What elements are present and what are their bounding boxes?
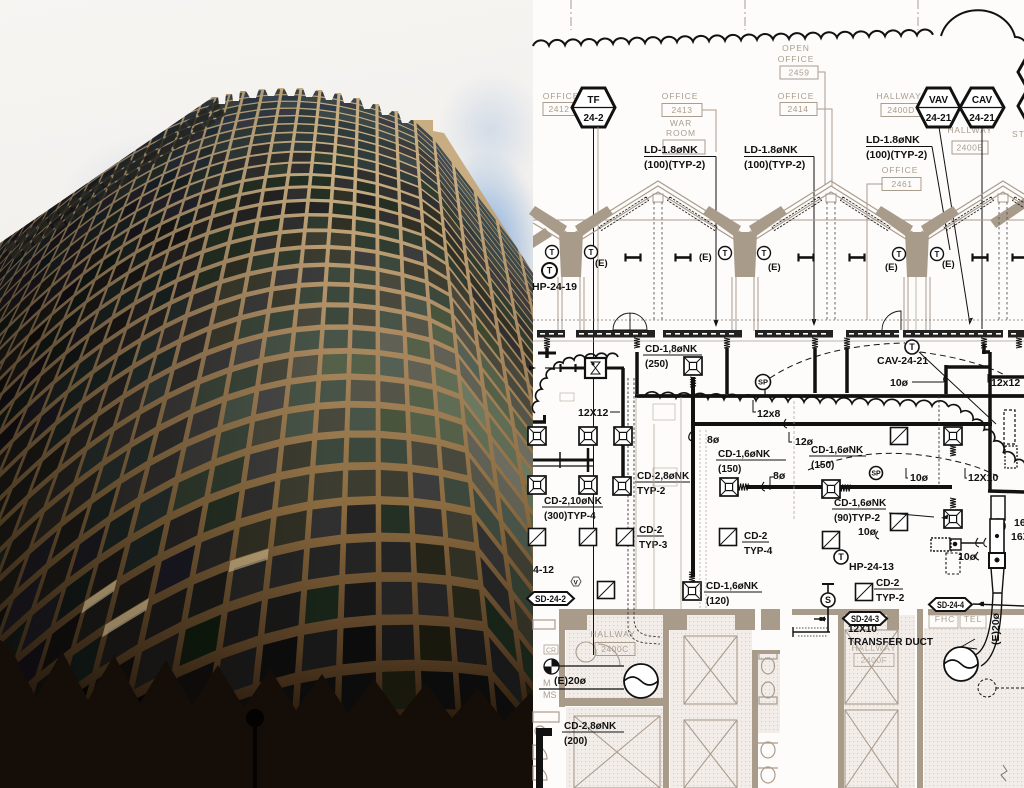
svg-text:T: T — [550, 248, 555, 257]
svg-text:CAV-24-21: CAV-24-21 — [877, 355, 928, 367]
svg-text:(E): (E) — [699, 252, 712, 263]
svg-text:HP-24-19: HP-24-19 — [532, 281, 577, 293]
svg-text:OFFICE: OFFICE — [778, 54, 815, 64]
svg-text:CD-2: CD-2 — [876, 578, 900, 589]
svg-text:CAV: CAV — [972, 95, 993, 106]
svg-text:OFFICE: OFFICE — [543, 91, 580, 101]
svg-text:(90)TYP-2: (90)TYP-2 — [834, 513, 881, 524]
svg-text:CD-1,8øNK: CD-1,8øNK — [645, 344, 698, 355]
svg-text:12x12: 12x12 — [991, 377, 1020, 389]
svg-text:2461: 2461 — [892, 179, 913, 189]
svg-text:LD-1.8øNK: LD-1.8øNK — [644, 144, 698, 156]
svg-text:16: 16 — [1014, 517, 1024, 529]
svg-text:TF: TF — [587, 95, 599, 106]
svg-text:HALLWAY: HALLWAY — [876, 91, 921, 101]
svg-text:24-21: 24-21 — [969, 113, 995, 124]
svg-text:VAV: VAV — [929, 95, 948, 106]
svg-text:8ø: 8ø — [773, 470, 786, 482]
svg-text:TYP-3: TYP-3 — [639, 540, 668, 551]
svg-text:V: V — [574, 580, 579, 587]
svg-text:2400E: 2400E — [956, 143, 983, 153]
svg-text:LD-1.8øNK: LD-1.8øNK — [866, 134, 920, 146]
svg-text:OFFICE: OFFICE — [778, 91, 815, 101]
svg-text:4-12: 4-12 — [533, 564, 554, 576]
svg-text:CD-2: CD-2 — [639, 525, 663, 536]
svg-text:12X12: 12X12 — [578, 407, 609, 419]
svg-text:(E): (E) — [595, 258, 608, 269]
svg-text:2400D: 2400D — [887, 105, 915, 115]
svg-text:10ø: 10ø — [858, 526, 877, 538]
svg-text:T: T — [589, 248, 594, 257]
svg-text:24-2: 24-2 — [583, 113, 603, 124]
svg-text:T: T — [547, 266, 553, 276]
svg-text:MS: MS — [543, 690, 557, 700]
svg-text:S: S — [825, 595, 831, 605]
svg-text:TYP-2: TYP-2 — [876, 593, 905, 604]
svg-text:OPEN: OPEN — [782, 43, 810, 53]
svg-text:HALLWAY: HALLWAY — [851, 643, 896, 653]
svg-text:WAR: WAR — [670, 118, 692, 128]
svg-text:HALLWAY: HALLWAY — [590, 629, 635, 639]
svg-text:(100)(TYP-2): (100)(TYP-2) — [866, 149, 927, 161]
svg-text:T: T — [762, 249, 767, 258]
svg-text:2413: 2413 — [672, 105, 693, 115]
svg-text:(250): (250) — [645, 359, 668, 370]
svg-text:(150): (150) — [718, 464, 741, 475]
svg-text:12x8: 12x8 — [757, 408, 781, 420]
svg-text:SD-24-2: SD-24-2 — [535, 594, 566, 605]
svg-text:TYP-2: TYP-2 — [637, 486, 666, 497]
svg-text:OFFICE: OFFICE — [662, 91, 699, 101]
svg-text:TYP-4: TYP-4 — [744, 546, 773, 557]
svg-text:FHC: FHC — [935, 614, 955, 624]
svg-text:CD-2,8øNK: CD-2,8øNK — [637, 471, 690, 482]
svg-text:24-21: 24-21 — [926, 113, 952, 124]
svg-text:(E)20ø: (E)20ø — [990, 612, 1002, 645]
svg-text:2412: 2412 — [549, 104, 570, 114]
svg-text:CD-2,10øNK: CD-2,10øNK — [544, 496, 603, 507]
svg-text:T: T — [909, 342, 915, 352]
svg-text:SP: SP — [871, 471, 881, 478]
svg-text:CD-2: CD-2 — [744, 531, 768, 542]
svg-text:(E): (E) — [942, 259, 955, 270]
svg-text:(300)TYP-4: (300)TYP-4 — [544, 511, 596, 522]
svg-text:(200): (200) — [564, 736, 587, 747]
svg-text:CD-2,8øNK: CD-2,8øNK — [564, 721, 617, 732]
svg-text:(E)20ø: (E)20ø — [554, 675, 587, 687]
svg-text:HP-24-13: HP-24-13 — [849, 561, 894, 573]
svg-text:10ø: 10ø — [910, 472, 929, 484]
svg-text:(100)(TYP-2): (100)(TYP-2) — [744, 159, 805, 171]
svg-text:10ø: 10ø — [890, 377, 909, 389]
svg-text:T: T — [897, 250, 902, 259]
svg-text:12X10: 12X10 — [848, 624, 877, 635]
svg-text:16X: 16X — [1011, 531, 1024, 543]
svg-text:LD-1.8øNK: LD-1.8øNK — [744, 144, 798, 156]
svg-text:T: T — [838, 552, 844, 562]
svg-text:(E): (E) — [768, 262, 781, 273]
svg-text:CD-1,6øNK: CD-1,6øNK — [834, 498, 887, 509]
svg-text:OFFICE: OFFICE — [882, 165, 919, 175]
svg-text:2400C: 2400C — [601, 644, 629, 654]
svg-text:CD-1,6øNK: CD-1,6øNK — [718, 449, 771, 460]
svg-text:SP: SP — [758, 378, 768, 387]
svg-text:12X10: 12X10 — [968, 472, 999, 484]
svg-text:8ø: 8ø — [707, 434, 720, 446]
svg-text:SD-24-4: SD-24-4 — [937, 600, 965, 611]
svg-text:2459: 2459 — [789, 68, 810, 78]
svg-text:T: T — [723, 249, 728, 258]
svg-text:(120): (120) — [706, 596, 729, 607]
svg-text:10ø: 10ø — [958, 551, 977, 563]
svg-text:ST: ST — [1012, 129, 1024, 139]
svg-text:CD-1,6øNK: CD-1,6øNK — [811, 445, 864, 456]
svg-text:(E): (E) — [885, 262, 898, 273]
svg-text:ROOM: ROOM — [666, 128, 696, 138]
svg-text:2414: 2414 — [788, 104, 809, 114]
svg-text:M: M — [543, 678, 551, 688]
svg-text:T: T — [935, 250, 940, 259]
svg-text:CD-1,6øNK: CD-1,6øNK — [706, 581, 759, 592]
svg-text:TEL: TEL — [964, 614, 983, 624]
svg-text:(100)(TYP-2): (100)(TYP-2) — [644, 159, 705, 171]
svg-text:2400F: 2400F — [861, 655, 888, 665]
svg-text:CR: CR — [546, 648, 556, 655]
